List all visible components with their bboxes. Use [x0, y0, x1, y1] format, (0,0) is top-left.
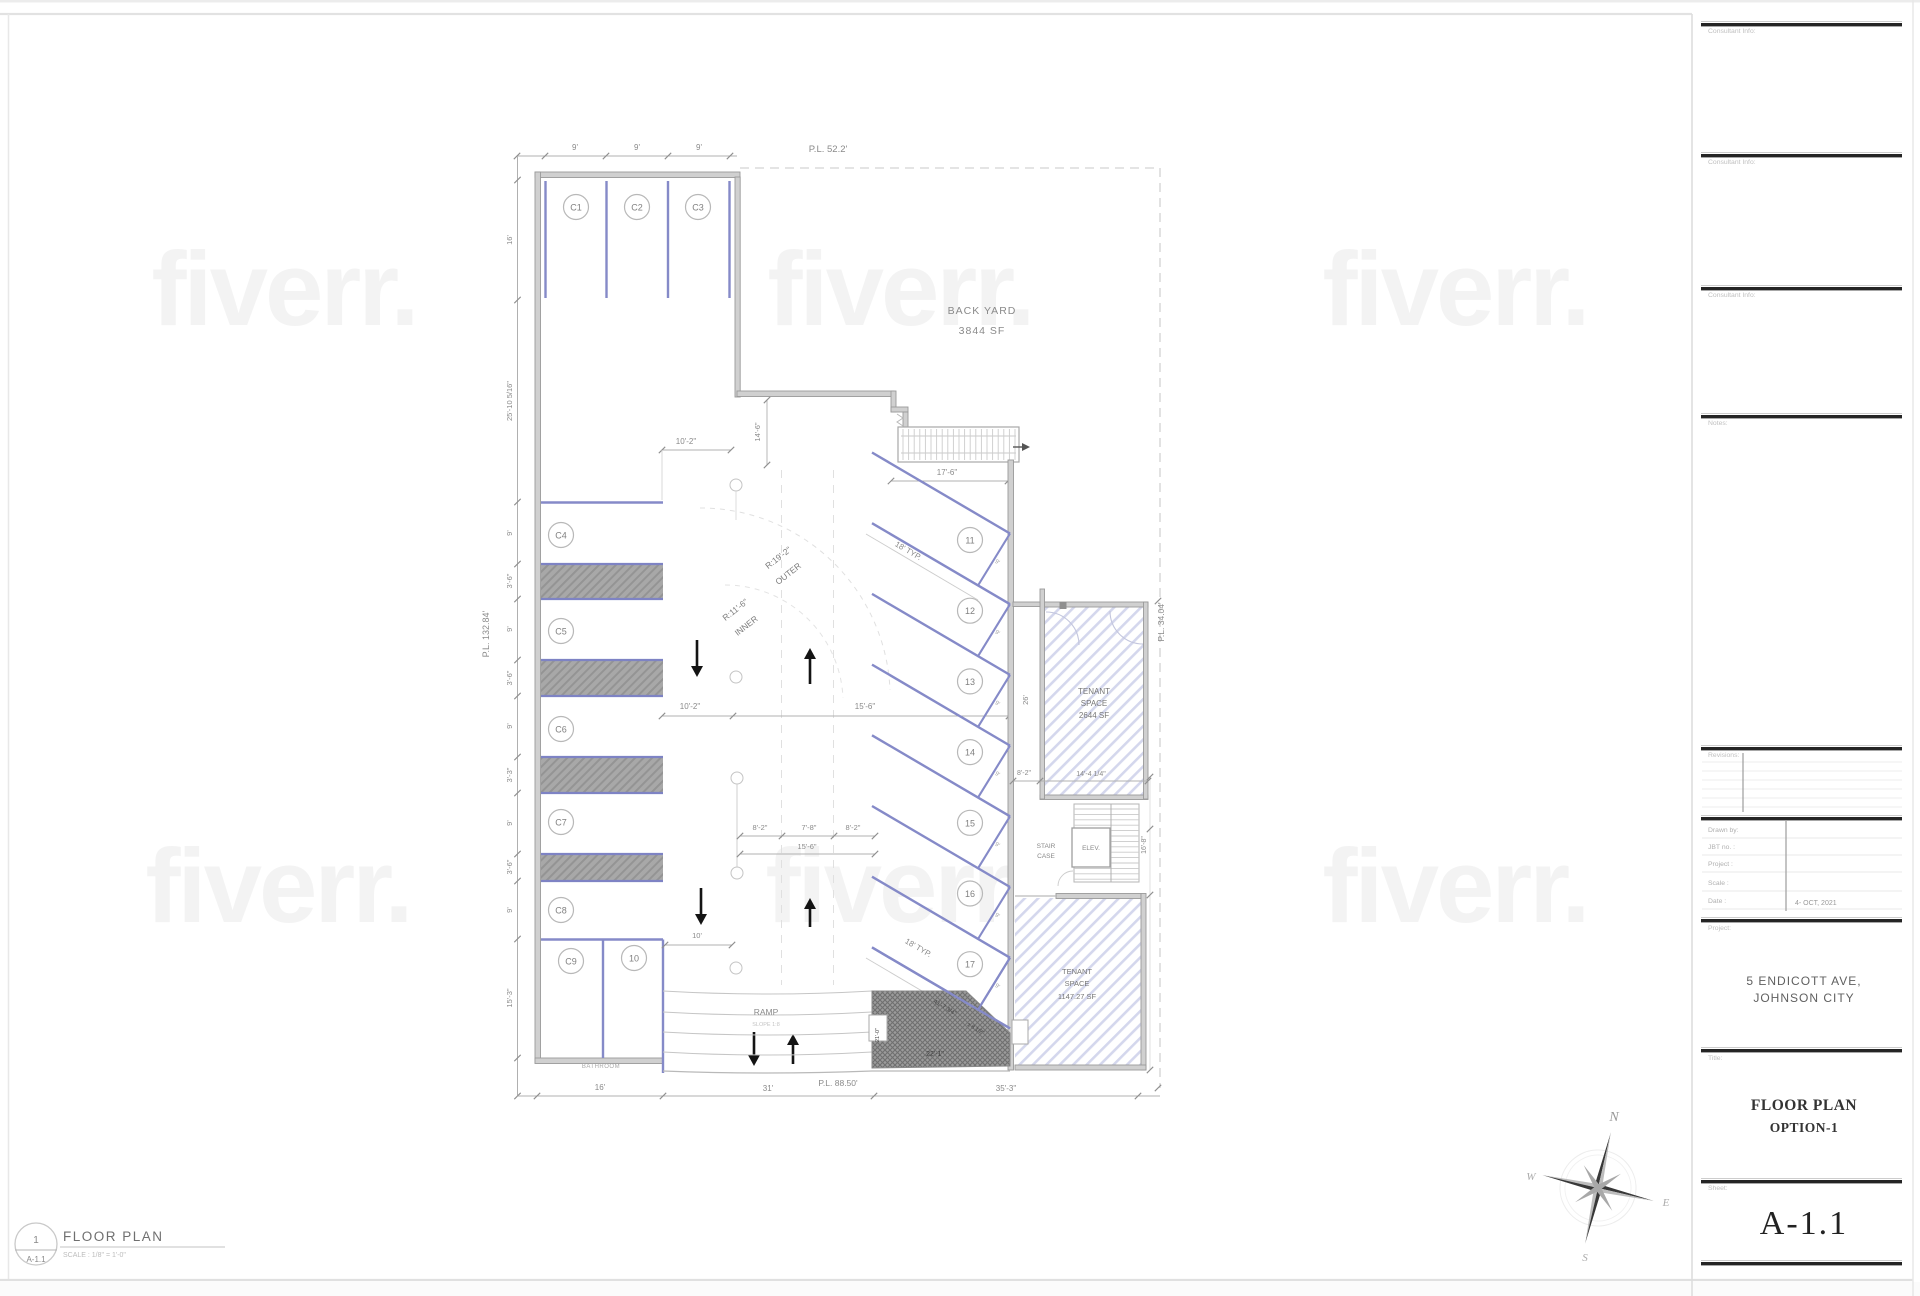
svg-text:ELEV.: ELEV.	[1082, 845, 1100, 852]
svg-text:FLOOR PLAN: FLOOR PLAN	[63, 1229, 164, 1244]
svg-text:N: N	[1608, 1110, 1619, 1125]
svg-text:14: 14	[965, 748, 975, 758]
svg-text:13: 13	[965, 677, 975, 687]
svg-text:C1: C1	[570, 203, 582, 213]
svg-text:Revisions:: Revisions:	[1708, 752, 1739, 759]
svg-text:25'-10 5/16": 25'-10 5/16"	[505, 381, 514, 421]
svg-text:Scale :: Scale :	[1708, 880, 1729, 887]
svg-text:3'-3": 3'-3"	[505, 767, 514, 782]
svg-text:OPTION-1: OPTION-1	[1770, 1120, 1839, 1135]
svg-text:E: E	[1662, 1197, 1670, 1209]
svg-text:S: S	[1582, 1252, 1588, 1264]
svg-text:35'-3": 35'-3"	[996, 1084, 1017, 1093]
svg-text:1147.27 SF: 1147.27 SF	[1058, 992, 1097, 1001]
svg-text:Title:: Title:	[1708, 1055, 1723, 1062]
svg-text:Project:: Project:	[1708, 925, 1731, 932]
svg-text:8'-2": 8'-2"	[753, 823, 768, 832]
svg-text:P.L. 34.04': P.L. 34.04'	[1156, 602, 1166, 642]
svg-text:FLOOR PLAN: FLOOR PLAN	[1751, 1097, 1857, 1114]
svg-text:fiverr.: fiverr.	[1322, 828, 1587, 945]
svg-text:C4: C4	[555, 531, 567, 541]
svg-text:10'-2": 10'-2"	[680, 702, 701, 711]
svg-text:BACK YARD: BACK YARD	[948, 305, 1017, 317]
svg-text:21'-0": 21'-0"	[875, 1028, 881, 1042]
svg-text:4- OCT, 2021: 4- OCT, 2021	[1795, 900, 1837, 907]
svg-text:Consultant Info:: Consultant Info:	[1708, 292, 1756, 299]
svg-text:16: 16	[965, 889, 975, 899]
svg-text:Project :: Project :	[1708, 861, 1733, 868]
svg-text:3'-6": 3'-6"	[505, 573, 514, 588]
svg-text:Sheet:: Sheet:	[1708, 1185, 1728, 1192]
svg-text:CASE: CASE	[1037, 853, 1055, 860]
svg-text:TENANT: TENANT	[1062, 967, 1092, 976]
svg-text:1: 1	[33, 1235, 39, 1246]
svg-text:C2: C2	[631, 203, 643, 213]
svg-text:Date :: Date :	[1708, 898, 1726, 905]
svg-text:17'-6": 17'-6"	[937, 468, 958, 477]
svg-text:10': 10'	[692, 931, 702, 940]
svg-text:JOHNSON CITY: JOHNSON CITY	[1753, 991, 1854, 1005]
svg-text:C6: C6	[555, 725, 567, 735]
svg-text:3844 SF: 3844 SF	[959, 325, 1006, 337]
svg-text:16': 16'	[505, 235, 514, 245]
svg-text:TENANT: TENANT	[1078, 687, 1110, 696]
svg-text:Notes:: Notes:	[1708, 420, 1728, 427]
svg-text:RAMP: RAMP	[754, 1007, 779, 1017]
svg-text:SPACE: SPACE	[1081, 699, 1108, 708]
svg-text:C5: C5	[555, 627, 567, 637]
svg-text:10: 10	[629, 954, 639, 964]
svg-text:fiverr.: fiverr.	[151, 231, 416, 348]
svg-text:SCALE : 1/8" = 1'-0": SCALE : 1/8" = 1'-0"	[63, 1252, 126, 1259]
svg-text:fiverr.: fiverr.	[145, 828, 410, 945]
svg-text:14'-4 1/4": 14'-4 1/4"	[1076, 771, 1106, 778]
svg-text:A-1.1: A-1.1	[1760, 1205, 1848, 1242]
svg-text:15'-6": 15'-6"	[797, 842, 816, 851]
svg-text:16'-8": 16'-8"	[1141, 836, 1148, 854]
svg-text:P.L. 88.50': P.L. 88.50'	[818, 1078, 858, 1088]
svg-text:31': 31'	[763, 1084, 774, 1093]
svg-text:fiverr.: fiverr.	[1322, 231, 1587, 348]
svg-text:STAIR: STAIR	[1037, 843, 1056, 850]
svg-text:C3: C3	[692, 203, 704, 213]
svg-text:12: 12	[965, 606, 975, 616]
svg-text:9': 9'	[505, 530, 514, 536]
svg-text:2644 SF: 2644 SF	[1079, 711, 1109, 720]
svg-text:7'-8": 7'-8"	[802, 823, 817, 832]
svg-text:9': 9'	[696, 143, 702, 152]
svg-text:W: W	[1526, 1171, 1536, 1183]
svg-text:SPACE: SPACE	[1065, 979, 1090, 988]
svg-text:Consultant Info:: Consultant Info:	[1708, 28, 1756, 35]
svg-text:Consultant Info:: Consultant Info:	[1708, 159, 1756, 166]
svg-text:C9: C9	[565, 957, 577, 967]
svg-text:16': 16'	[595, 1083, 606, 1092]
svg-text:9': 9'	[505, 907, 514, 913]
svg-text:15: 15	[965, 818, 975, 828]
svg-text:3'-6": 3'-6"	[505, 859, 514, 874]
svg-text:9': 9'	[505, 626, 514, 632]
svg-text:8'-2": 8'-2"	[846, 823, 861, 832]
svg-text:26': 26'	[1021, 695, 1030, 705]
svg-text:17: 17	[965, 960, 975, 970]
svg-text:9': 9'	[572, 143, 578, 152]
svg-text:8'-2": 8'-2"	[1017, 770, 1031, 777]
svg-text:22'-1": 22'-1"	[926, 1051, 944, 1058]
svg-text:BATHROOM: BATHROOM	[582, 1064, 620, 1070]
svg-text:10'-2": 10'-2"	[676, 437, 697, 446]
svg-text:Drawn by:: Drawn by:	[1708, 827, 1739, 834]
svg-text:A-1.1: A-1.1	[26, 1255, 46, 1264]
svg-text:15'-6": 15'-6"	[855, 702, 876, 711]
svg-text:SLOPE 1:8: SLOPE 1:8	[752, 1022, 780, 1028]
svg-text:14'-6": 14'-6"	[753, 422, 762, 441]
svg-text:C7: C7	[555, 818, 567, 828]
svg-text:3'-6": 3'-6"	[505, 670, 514, 685]
svg-text:11: 11	[965, 536, 974, 546]
svg-text:15'-3": 15'-3"	[505, 988, 514, 1007]
svg-text:P.L. 132.84': P.L. 132.84'	[481, 610, 491, 657]
svg-text:5 ENDICOTT AVE,: 5 ENDICOTT AVE,	[1746, 974, 1861, 988]
svg-text:9': 9'	[505, 820, 514, 826]
svg-text:9': 9'	[634, 143, 640, 152]
svg-text:JBT no. :: JBT no. :	[1708, 844, 1735, 851]
svg-text:C8: C8	[555, 906, 567, 916]
svg-text:9': 9'	[505, 723, 514, 729]
svg-text:P.L. 52.2': P.L. 52.2'	[809, 144, 848, 155]
